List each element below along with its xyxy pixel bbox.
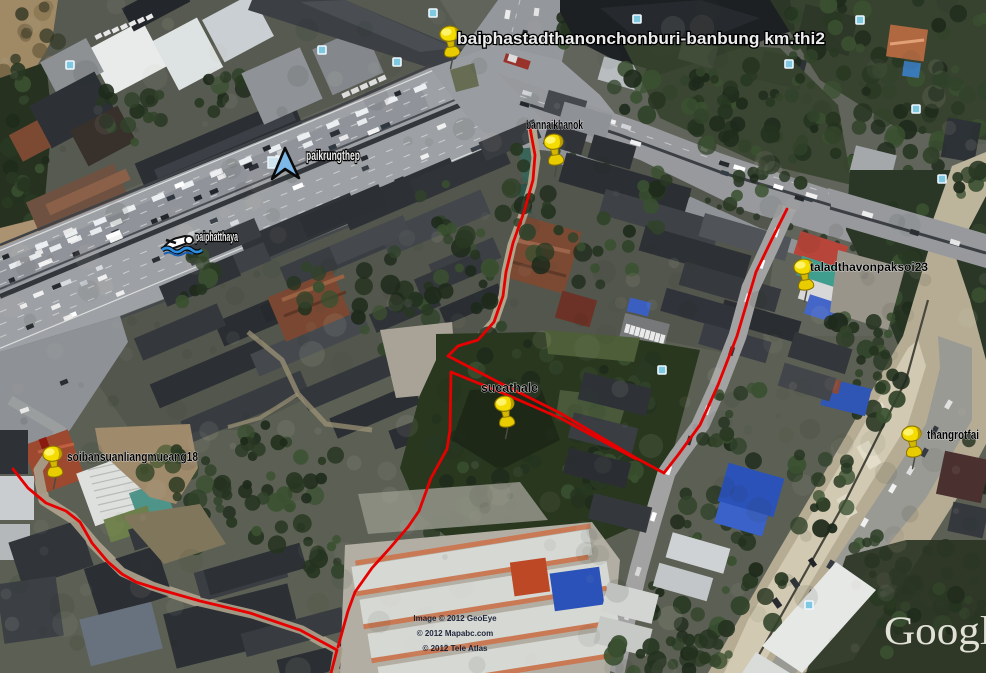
svg-text:© 2012 Mapabc.com: © 2012 Mapabc.com bbox=[417, 629, 494, 638]
svg-text:Image © 2012 GeoEye: Image © 2012 GeoEye bbox=[413, 614, 497, 623]
svg-text:sueathale: sueathale bbox=[481, 381, 538, 395]
svg-text:paiphatthaya: paiphatthaya bbox=[195, 229, 238, 244]
svg-text:taladthavonpaksoi23: taladthavonpaksoi23 bbox=[810, 260, 928, 274]
svg-text:soibansuanliangmueang18: soibansuanliangmueang18 bbox=[67, 450, 198, 464]
svg-text:© 2012 Tele Atlas: © 2012 Tele Atlas bbox=[422, 644, 488, 653]
svg-text:thangrotfai: thangrotfai bbox=[927, 428, 979, 442]
svg-text:Google: Google bbox=[884, 608, 986, 653]
svg-text:paikrungthep: paikrungthep bbox=[306, 147, 360, 163]
svg-text:baiphastadthanonchonburi-banbu: baiphastadthanonchonburi-banbung km.thi2 bbox=[457, 30, 825, 48]
svg-text:bannaikhanok: bannaikhanok bbox=[526, 117, 583, 132]
